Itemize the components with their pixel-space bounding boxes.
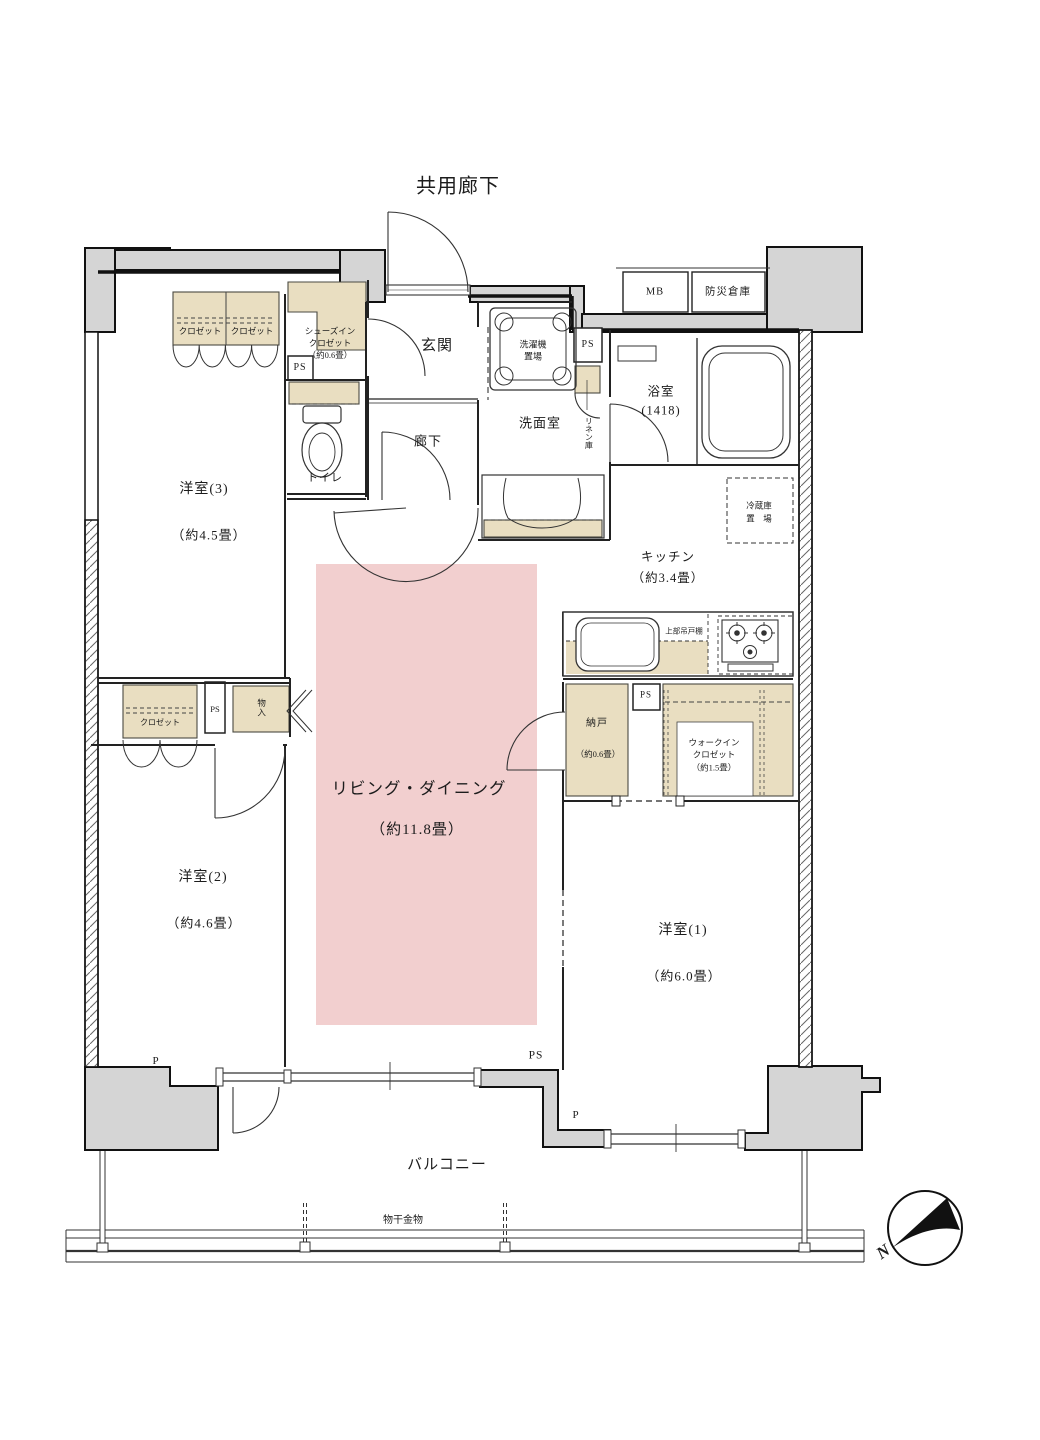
closet2-label: クロゼット [140,717,180,729]
shoes-in-closet-label: シューズイン クロゼット （約0.6畳） [305,326,356,362]
fridge-space-label: 冷蔵庫 置 場 [746,499,772,525]
ps-bottom-label: PS [529,1048,544,1065]
storage-cubby-label: 物入 [256,699,265,718]
upper-cabinet-label: 上部吊戸棚 [665,627,703,638]
bedroom3-size-label: （約4.5畳） [171,527,246,546]
windows [216,1062,745,1152]
laundry-hardware-label: 物干金物 [383,1214,423,1229]
entrance-label: 玄関 [421,336,453,358]
p-right-label: P [572,1108,579,1124]
compass-icon [888,1191,962,1265]
storeroom-size-label: （約0.6畳） [576,748,621,760]
disaster-storage-label: 防災倉庫 [705,284,751,299]
balcony-label: バルコニー [407,1155,487,1177]
common-corridor-label: 共用廊下 [416,173,500,202]
living-dining-size-label: （約11.8畳） [370,820,464,842]
bedroom1-size-label: （約6.0畳） [646,968,721,987]
mb-label: MB [646,284,664,299]
washroom-label: 洗面室 [519,415,561,434]
ps3-label: PS [640,688,652,701]
washer-space-label: 洗濯機 置場 [519,339,546,362]
living-dining-label: リビング・ダイニング [332,777,507,801]
closet3a-label: クロゼット [179,325,222,337]
storeroom-label: 納戸 [586,717,608,732]
walk-in-closet-label: ウォークイン クロゼット （約1.5畳） [688,737,739,774]
toilet-icon [292,404,356,477]
closet3b-label: クロゼット [231,325,274,337]
bedroom1-label: 洋室(1) [658,921,707,941]
bedroom2-size-label: （約4.6畳） [166,915,241,934]
hallway-label: 廊下 [414,433,442,452]
bathroom-label: 浴室 (1418) [641,382,680,420]
kitchen-label: キッチン （約3.4畳） [632,547,705,590]
toilet-label: トイレ [307,471,343,487]
bedroom3-label: 洋室(3) [179,480,228,500]
ps2-label: PS [581,338,594,353]
linen-closet-label: リネン庫 [584,417,593,449]
ps4-label: PS [210,703,219,715]
p-left-label: P [152,1054,159,1070]
bedroom2-label: 洋室(2) [178,868,227,888]
floor-plan-page: 共用廊下 クロゼット クロゼット シューズイン クロゼット （約0.6畳） PS… [0,0,1040,1440]
ps1-label: PS [293,361,306,376]
